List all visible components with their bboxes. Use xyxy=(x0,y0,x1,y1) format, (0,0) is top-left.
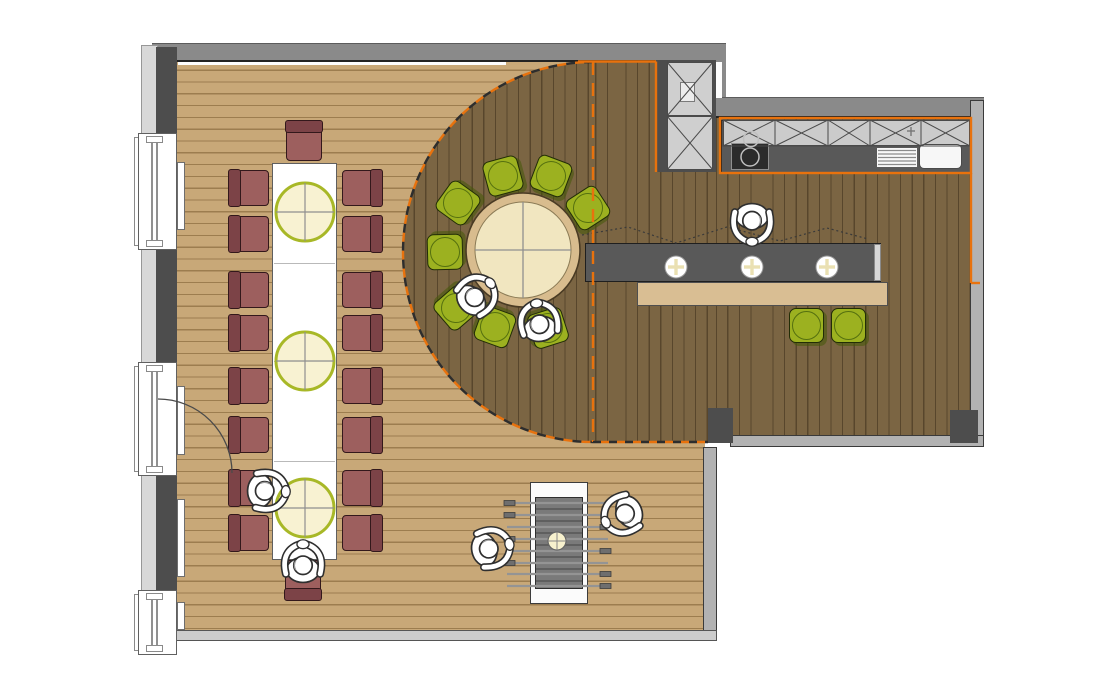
person-figure xyxy=(436,254,518,336)
person-hands xyxy=(297,540,309,549)
person-figure xyxy=(274,533,332,591)
person-figure xyxy=(723,195,781,253)
person-hands xyxy=(281,485,290,497)
person-figure xyxy=(506,288,572,354)
person-head xyxy=(255,481,274,500)
person-hands xyxy=(746,237,758,246)
people-layer xyxy=(0,0,1110,675)
foosball-player-right xyxy=(584,477,661,554)
diner-round-table-southwest xyxy=(436,254,518,336)
foosball-player-left xyxy=(458,514,527,583)
diner-round-table-south xyxy=(506,288,572,354)
guest-standing-at-bar xyxy=(723,195,781,253)
person-head xyxy=(294,556,312,574)
person-figure xyxy=(238,461,298,521)
diner-long-table-side xyxy=(238,461,298,521)
person-head xyxy=(743,211,761,229)
person-figure xyxy=(458,514,527,583)
person-figure xyxy=(584,477,661,554)
person-hands xyxy=(504,537,515,551)
floor-plan-canvas xyxy=(0,0,1110,675)
diner-long-table-end xyxy=(274,533,332,591)
